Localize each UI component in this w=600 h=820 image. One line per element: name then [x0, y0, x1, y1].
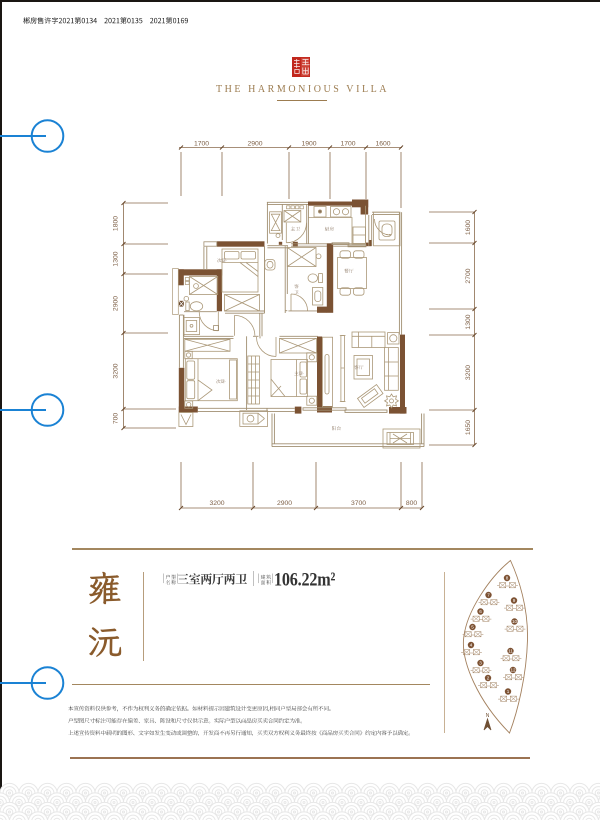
svg-text:10: 10	[512, 619, 518, 624]
svg-text:2700: 2700	[465, 268, 472, 283]
svg-text:8: 8	[506, 576, 509, 581]
svg-text:3700: 3700	[351, 500, 366, 507]
svg-text:3200: 3200	[465, 365, 472, 380]
svg-text:N: N	[486, 713, 490, 719]
svg-text:11: 11	[508, 649, 513, 654]
svg-text:6: 6	[479, 609, 482, 614]
svg-text:3200: 3200	[209, 500, 224, 507]
svg-text:4: 4	[470, 643, 473, 648]
svg-text:1800: 1800	[113, 216, 120, 231]
svg-text:1700: 1700	[340, 141, 355, 148]
svg-text:1900: 1900	[301, 141, 316, 148]
svg-text:2900: 2900	[113, 296, 120, 311]
svg-text:3200: 3200	[113, 363, 120, 378]
svg-text:1650: 1650	[465, 420, 472, 435]
svg-text:9: 9	[513, 598, 516, 603]
svg-text:1300: 1300	[113, 251, 120, 266]
svg-text:2900: 2900	[247, 141, 262, 148]
svg-text:12: 12	[510, 668, 516, 673]
svg-text:1300: 1300	[465, 314, 472, 329]
svg-text:1600: 1600	[465, 220, 472, 235]
svg-text:700: 700	[113, 413, 120, 425]
svg-text:2900: 2900	[277, 500, 292, 507]
svg-text:1700: 1700	[194, 141, 209, 148]
svg-text:800: 800	[406, 500, 418, 507]
svg-text:1: 1	[507, 689, 510, 694]
svg-text:3: 3	[479, 661, 482, 666]
svg-text:5: 5	[471, 625, 474, 630]
svg-text:1600: 1600	[375, 141, 390, 148]
svg-text:7: 7	[487, 593, 490, 598]
svg-text:2: 2	[487, 676, 490, 681]
